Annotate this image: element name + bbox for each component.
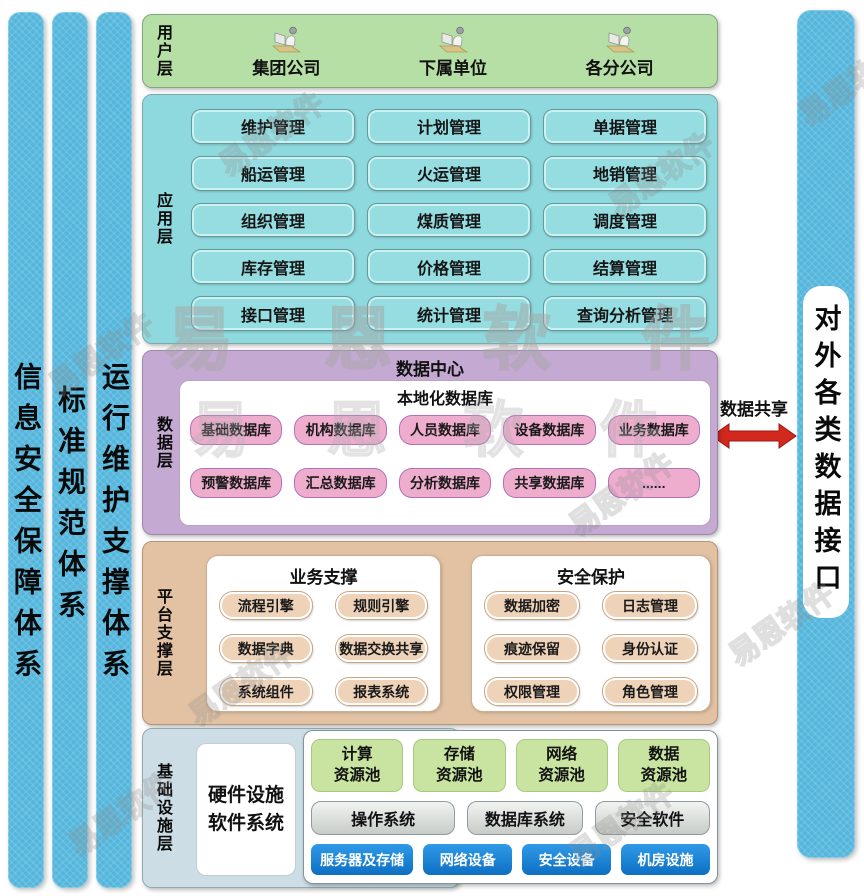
platform-support-layer: 平台支撑层 业务支撑 流程引擎 规则引擎 数据字典 数据交换共享 系统组件 报表… [142, 541, 718, 725]
local-database-panel: 本地化数据库 基础数据库 机构数据库 人员数据库 设备数据库 业务数据库 预警数… [179, 380, 711, 526]
application-layer-label-wrap: 应用层 [150, 95, 174, 343]
module-shipping-mgmt: 船运管理 [191, 156, 355, 191]
user-layer-label: 用户层 [150, 24, 174, 78]
data-dictionary: 数据字典 [220, 635, 312, 662]
hardware-software-systems-box: 硬件设施 软件系统 [196, 743, 296, 876]
network-resource-pool: 网络 资源池 [516, 739, 608, 792]
module-organization-mgmt: 组织管理 [191, 203, 355, 238]
platform-layer-label: 平台支撑层 [150, 588, 174, 678]
application-layer-label: 应用层 [150, 192, 174, 246]
right-bar-inner-panel: 对外各类数据接口 [803, 286, 849, 618]
hardware-facilities-label: 硬件设施 [208, 782, 284, 810]
db-personnel: 人员数据库 [399, 415, 491, 445]
module-price-mgmt: 价格管理 [367, 249, 531, 284]
module-plan-mgmt: 计划管理 [367, 109, 531, 144]
module-document-mgmt: 单据管理 [543, 109, 707, 144]
storage-resource-pool: 存储 资源池 [413, 739, 505, 792]
rule-engine: 规则引擎 [336, 592, 428, 619]
user-item-label: 下属单位 [419, 54, 487, 79]
module-settlement-mgmt: 结算管理 [543, 249, 707, 284]
local-database-title: 本地化数据库 [180, 385, 710, 409]
identity-authentication: 身份认证 [603, 635, 697, 662]
db-business: 业务数据库 [608, 415, 700, 445]
module-query-analysis-mgmt: 查询分析管理 [543, 296, 707, 331]
user-item-subordinate-unit: 下属单位 [370, 15, 537, 87]
left-bar-operation-maintenance-label: 运行维护支撑体系 [94, 362, 134, 690]
db-equipment: 设备数据库 [503, 415, 595, 445]
pool-line2: 资源池 [334, 766, 381, 786]
pool-line2: 资源池 [538, 766, 585, 786]
left-bar-standards: 标准规范体系 [52, 12, 88, 888]
user-item-branch-company: 各分公司 [536, 15, 703, 87]
user-layer-label-wrap: 用户层 [150, 15, 174, 87]
software-systems-label: 软件系统 [208, 810, 284, 838]
person-at-desk-icon [599, 23, 641, 53]
module-dispatch-mgmt: 调度管理 [543, 203, 707, 238]
data-resource-pool: 数据 资源池 [618, 739, 710, 792]
double-arrow-icon [711, 420, 797, 452]
user-items: 集团公司 下属单位 各分公司 [203, 15, 703, 87]
db-summary: 汇总数据库 [294, 468, 386, 498]
left-bar-standards-label: 标准规范体系 [50, 385, 90, 631]
application-modules: 维护管理 计划管理 单据管理 船运管理 火运管理 地销管理 组织管理 煤质管理 … [191, 109, 707, 331]
infrastructure-layer-label-wrap: 基础设施层 [150, 729, 174, 887]
data-exchange-sharing: 数据交换共享 [336, 635, 428, 662]
network-equipment-box: 网络设备 [423, 844, 512, 875]
right-bar-external-interfaces: 对外各类数据接口 [797, 10, 855, 858]
module-inventory-mgmt: 库存管理 [191, 249, 355, 284]
database-system-box: 数据库系统 [467, 801, 582, 835]
data-encryption: 数据加密 [485, 592, 579, 619]
data-layer-label: 数据层 [150, 416, 174, 470]
db-analysis: 分析数据库 [399, 468, 491, 498]
data-center-title: 数据中心 [143, 355, 717, 380]
system-components: 系统组件 [220, 678, 312, 705]
machine-room-facilities-box: 机房设施 [621, 844, 710, 875]
db-warning: 预警数据库 [190, 468, 282, 498]
security-software-box: 安全软件 [595, 801, 710, 835]
platform-layer-label-wrap: 平台支撑层 [150, 542, 174, 724]
person-at-desk-icon [432, 23, 474, 53]
security-protection-title: 安全保护 [472, 563, 710, 588]
module-interface-mgmt: 接口管理 [191, 296, 355, 331]
architecture-diagram: 信息安全保障体系 标准规范体系 运行维护支撑体系 对外各类数据接口 数据共享 用… [0, 0, 864, 896]
db-organization: 机构数据库 [294, 415, 386, 445]
business-support-title: 业务支撑 [207, 563, 440, 588]
module-maintenance-mgmt: 维护管理 [191, 109, 355, 144]
db-shared: 共享数据库 [503, 468, 595, 498]
role-management: 角色管理 [603, 678, 697, 705]
servers-storage-box: 服务器及存储 [311, 844, 413, 875]
pool-line2: 资源池 [641, 766, 688, 786]
application-layer: 应用层 维护管理 计划管理 单据管理 船运管理 火运管理 地销管理 组织管理 煤… [142, 94, 718, 344]
user-item-label: 各分公司 [586, 54, 654, 79]
security-equipment-box: 安全设备 [522, 844, 611, 875]
process-engine: 流程引擎 [220, 592, 312, 619]
system-software-row: 操作系统 数据库系统 安全软件 [311, 801, 710, 835]
pool-line2: 资源池 [436, 766, 483, 786]
business-support-panel: 业务支撑 流程引擎 规则引擎 数据字典 数据交换共享 系统组件 报表系统 [206, 555, 441, 712]
right-bar-label: 对外各类数据接口 [807, 304, 846, 600]
operating-system-box: 操作系统 [311, 801, 455, 835]
user-layer: 用户层 集团公司 下属单位 [142, 14, 718, 88]
pool-line1: 计算 [342, 745, 373, 765]
resource-pools: 计算 资源池 存储 资源池 网络 资源池 数据 资源池 [311, 739, 710, 792]
user-item-group-company: 集团公司 [203, 15, 370, 87]
business-support-items: 流程引擎 规则引擎 数据字典 数据交换共享 系统组件 报表系统 [220, 592, 427, 705]
report-system: 报表系统 [336, 678, 428, 705]
left-bar-operation-maintenance: 运行维护支撑体系 [96, 12, 132, 888]
db-basic: 基础数据库 [190, 415, 282, 445]
hardware-row: 服务器及存储 网络设备 安全设备 机房设施 [311, 844, 710, 875]
infrastructure-resources-panel: 计算 资源池 存储 资源池 网络 资源池 数据 资源池 操作系统 数据库系统 安… [303, 730, 718, 884]
pool-line1: 网络 [546, 745, 577, 765]
module-rail-transport-mgmt: 火运管理 [367, 156, 531, 191]
permission-management: 权限管理 [485, 678, 579, 705]
pool-line1: 数据 [648, 745, 679, 765]
log-management: 日志管理 [603, 592, 697, 619]
compute-resource-pool: 计算 资源池 [311, 739, 403, 792]
trace-retention: 痕迹保留 [485, 635, 579, 662]
db-more-ellipsis: ...... [608, 468, 700, 498]
security-protection-items: 数据加密 日志管理 痕迹保留 身份认证 权限管理 角色管理 [485, 592, 697, 705]
database-pills: 基础数据库 机构数据库 人员数据库 设备数据库 业务数据库 预警数据库 汇总数据… [190, 415, 700, 498]
pool-line1: 存储 [444, 745, 475, 765]
user-item-label: 集团公司 [252, 54, 320, 79]
module-local-sales-mgmt: 地销管理 [543, 156, 707, 191]
security-protection-panel: 安全保护 数据加密 日志管理 痕迹保留 身份认证 权限管理 角色管理 [471, 555, 711, 712]
person-at-desk-icon [265, 23, 307, 53]
module-coal-quality-mgmt: 煤质管理 [367, 203, 531, 238]
data-share-label: 数据共享 [710, 395, 798, 420]
data-layer: 数据层 数据中心 本地化数据库 基础数据库 机构数据库 人员数据库 设备数据库 … [142, 350, 718, 535]
infrastructure-layer-label: 基础设施层 [150, 763, 174, 853]
left-bar-info-security: 信息安全保障体系 [8, 12, 44, 888]
module-statistics-mgmt: 统计管理 [367, 296, 531, 331]
left-bar-info-security-label: 信息安全保障体系 [6, 362, 46, 690]
